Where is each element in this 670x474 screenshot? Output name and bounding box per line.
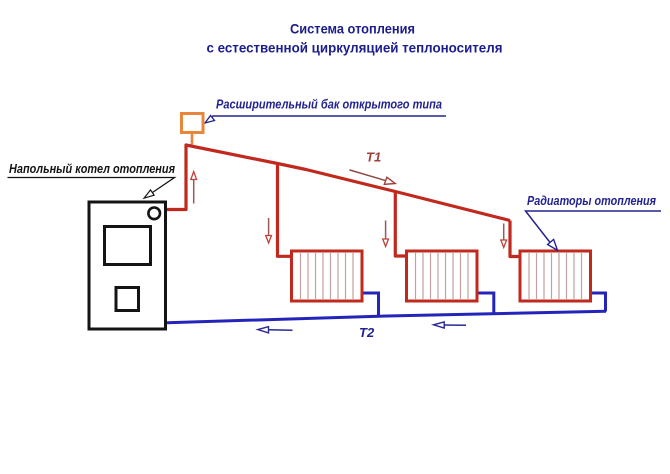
svg-text:Система отопления: Система отопления bbox=[290, 21, 415, 37]
svg-text:Радиаторы отопления: Радиаторы отопления bbox=[527, 193, 656, 208]
svg-text:Расширительный бак открытого т: Расширительный бак открытого типа bbox=[216, 97, 442, 112]
svg-text:Т1: Т1 bbox=[366, 150, 381, 165]
svg-text:Т2: Т2 bbox=[359, 325, 375, 340]
svg-text:с естественной циркуляцией теп: с естественной циркуляцией теплоносителя bbox=[207, 40, 503, 56]
svg-text:Напольный котел отопления: Напольный котел отопления bbox=[9, 161, 175, 176]
